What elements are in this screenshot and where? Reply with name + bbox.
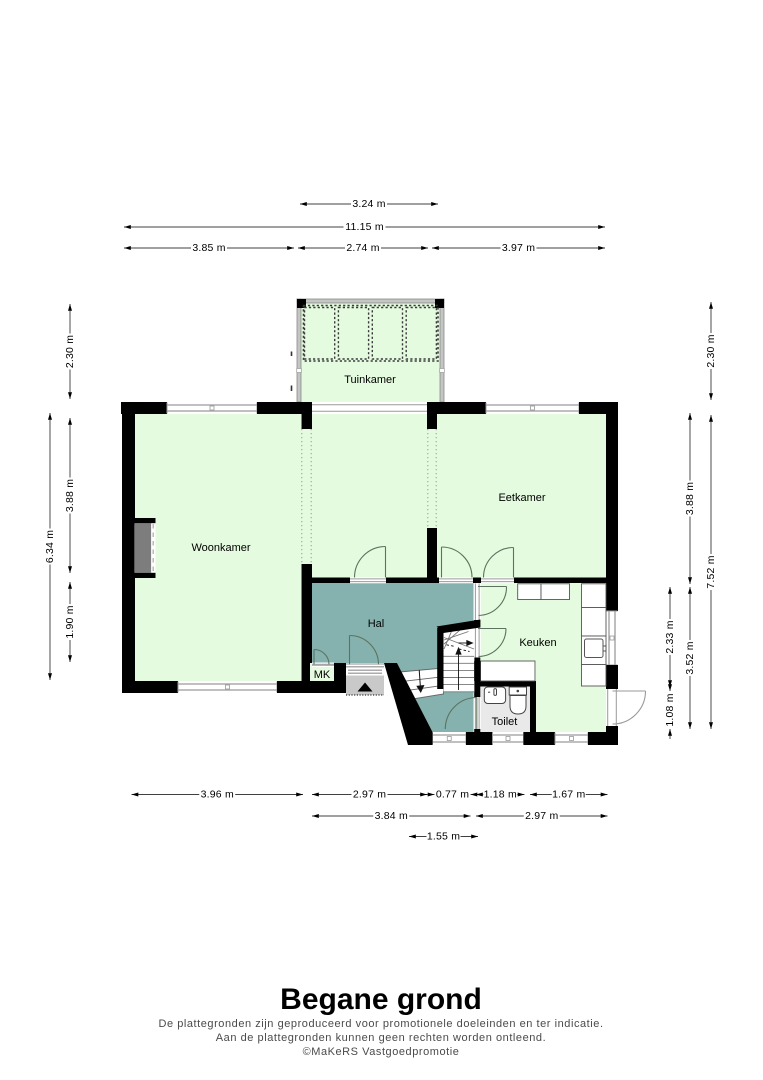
svg-text:De plattegronden zijn geproduc: De plattegronden zijn geproduceerd voor …: [158, 1018, 603, 1030]
svg-text:Hal: Hal: [368, 618, 385, 630]
svg-text:2.30 m: 2.30 m: [705, 334, 717, 367]
svg-text:2.97 m: 2.97 m: [353, 789, 386, 801]
svg-text:2.33 m: 2.33 m: [664, 620, 676, 653]
svg-text:3.88 m: 3.88 m: [64, 479, 76, 512]
svg-text:Aan de plattegronden kunnen ge: Aan de plattegronden kunnen geen rechten…: [216, 1032, 546, 1044]
svg-text:1.08 m: 1.08 m: [664, 693, 676, 726]
svg-text:2.30 m: 2.30 m: [64, 335, 76, 368]
svg-text:©MaKeRS Vastgoedpromotie: ©MaKeRS Vastgoedpromotie: [303, 1046, 460, 1058]
svg-text:3.85 m: 3.85 m: [192, 242, 225, 254]
svg-text:0.77 m: 0.77 m: [436, 789, 469, 801]
svg-text:Keuken: Keuken: [519, 637, 556, 649]
svg-text:2.97 m: 2.97 m: [525, 810, 558, 822]
svg-text:Eetkamer: Eetkamer: [498, 492, 545, 504]
svg-text:1.55 m: 1.55 m: [427, 831, 460, 843]
svg-text:3.84 m: 3.84 m: [375, 810, 408, 822]
svg-text:3.52 m: 3.52 m: [684, 641, 696, 674]
svg-text:MK: MK: [314, 669, 331, 681]
svg-text:Toilet: Toilet: [492, 716, 518, 728]
svg-text:3.88 m: 3.88 m: [684, 482, 696, 515]
svg-text:1.90 m: 1.90 m: [64, 605, 76, 638]
svg-text:2.74 m: 2.74 m: [346, 242, 379, 254]
svg-text:Begane grond: Begane grond: [280, 983, 482, 1016]
svg-text:11.15 m: 11.15 m: [345, 221, 384, 233]
svg-text:Woonkamer: Woonkamer: [191, 542, 250, 554]
svg-text:3.96 m: 3.96 m: [201, 789, 234, 801]
svg-text:6.34 m: 6.34 m: [44, 530, 56, 563]
svg-text:7.52 m: 7.52 m: [705, 555, 717, 588]
svg-text:1.18 m: 1.18 m: [484, 789, 517, 801]
svg-text:Tuinkamer: Tuinkamer: [344, 374, 396, 386]
svg-text:3.97 m: 3.97 m: [502, 242, 535, 254]
svg-text:1.67 m: 1.67 m: [552, 789, 585, 801]
svg-text:3.24 m: 3.24 m: [352, 198, 385, 210]
